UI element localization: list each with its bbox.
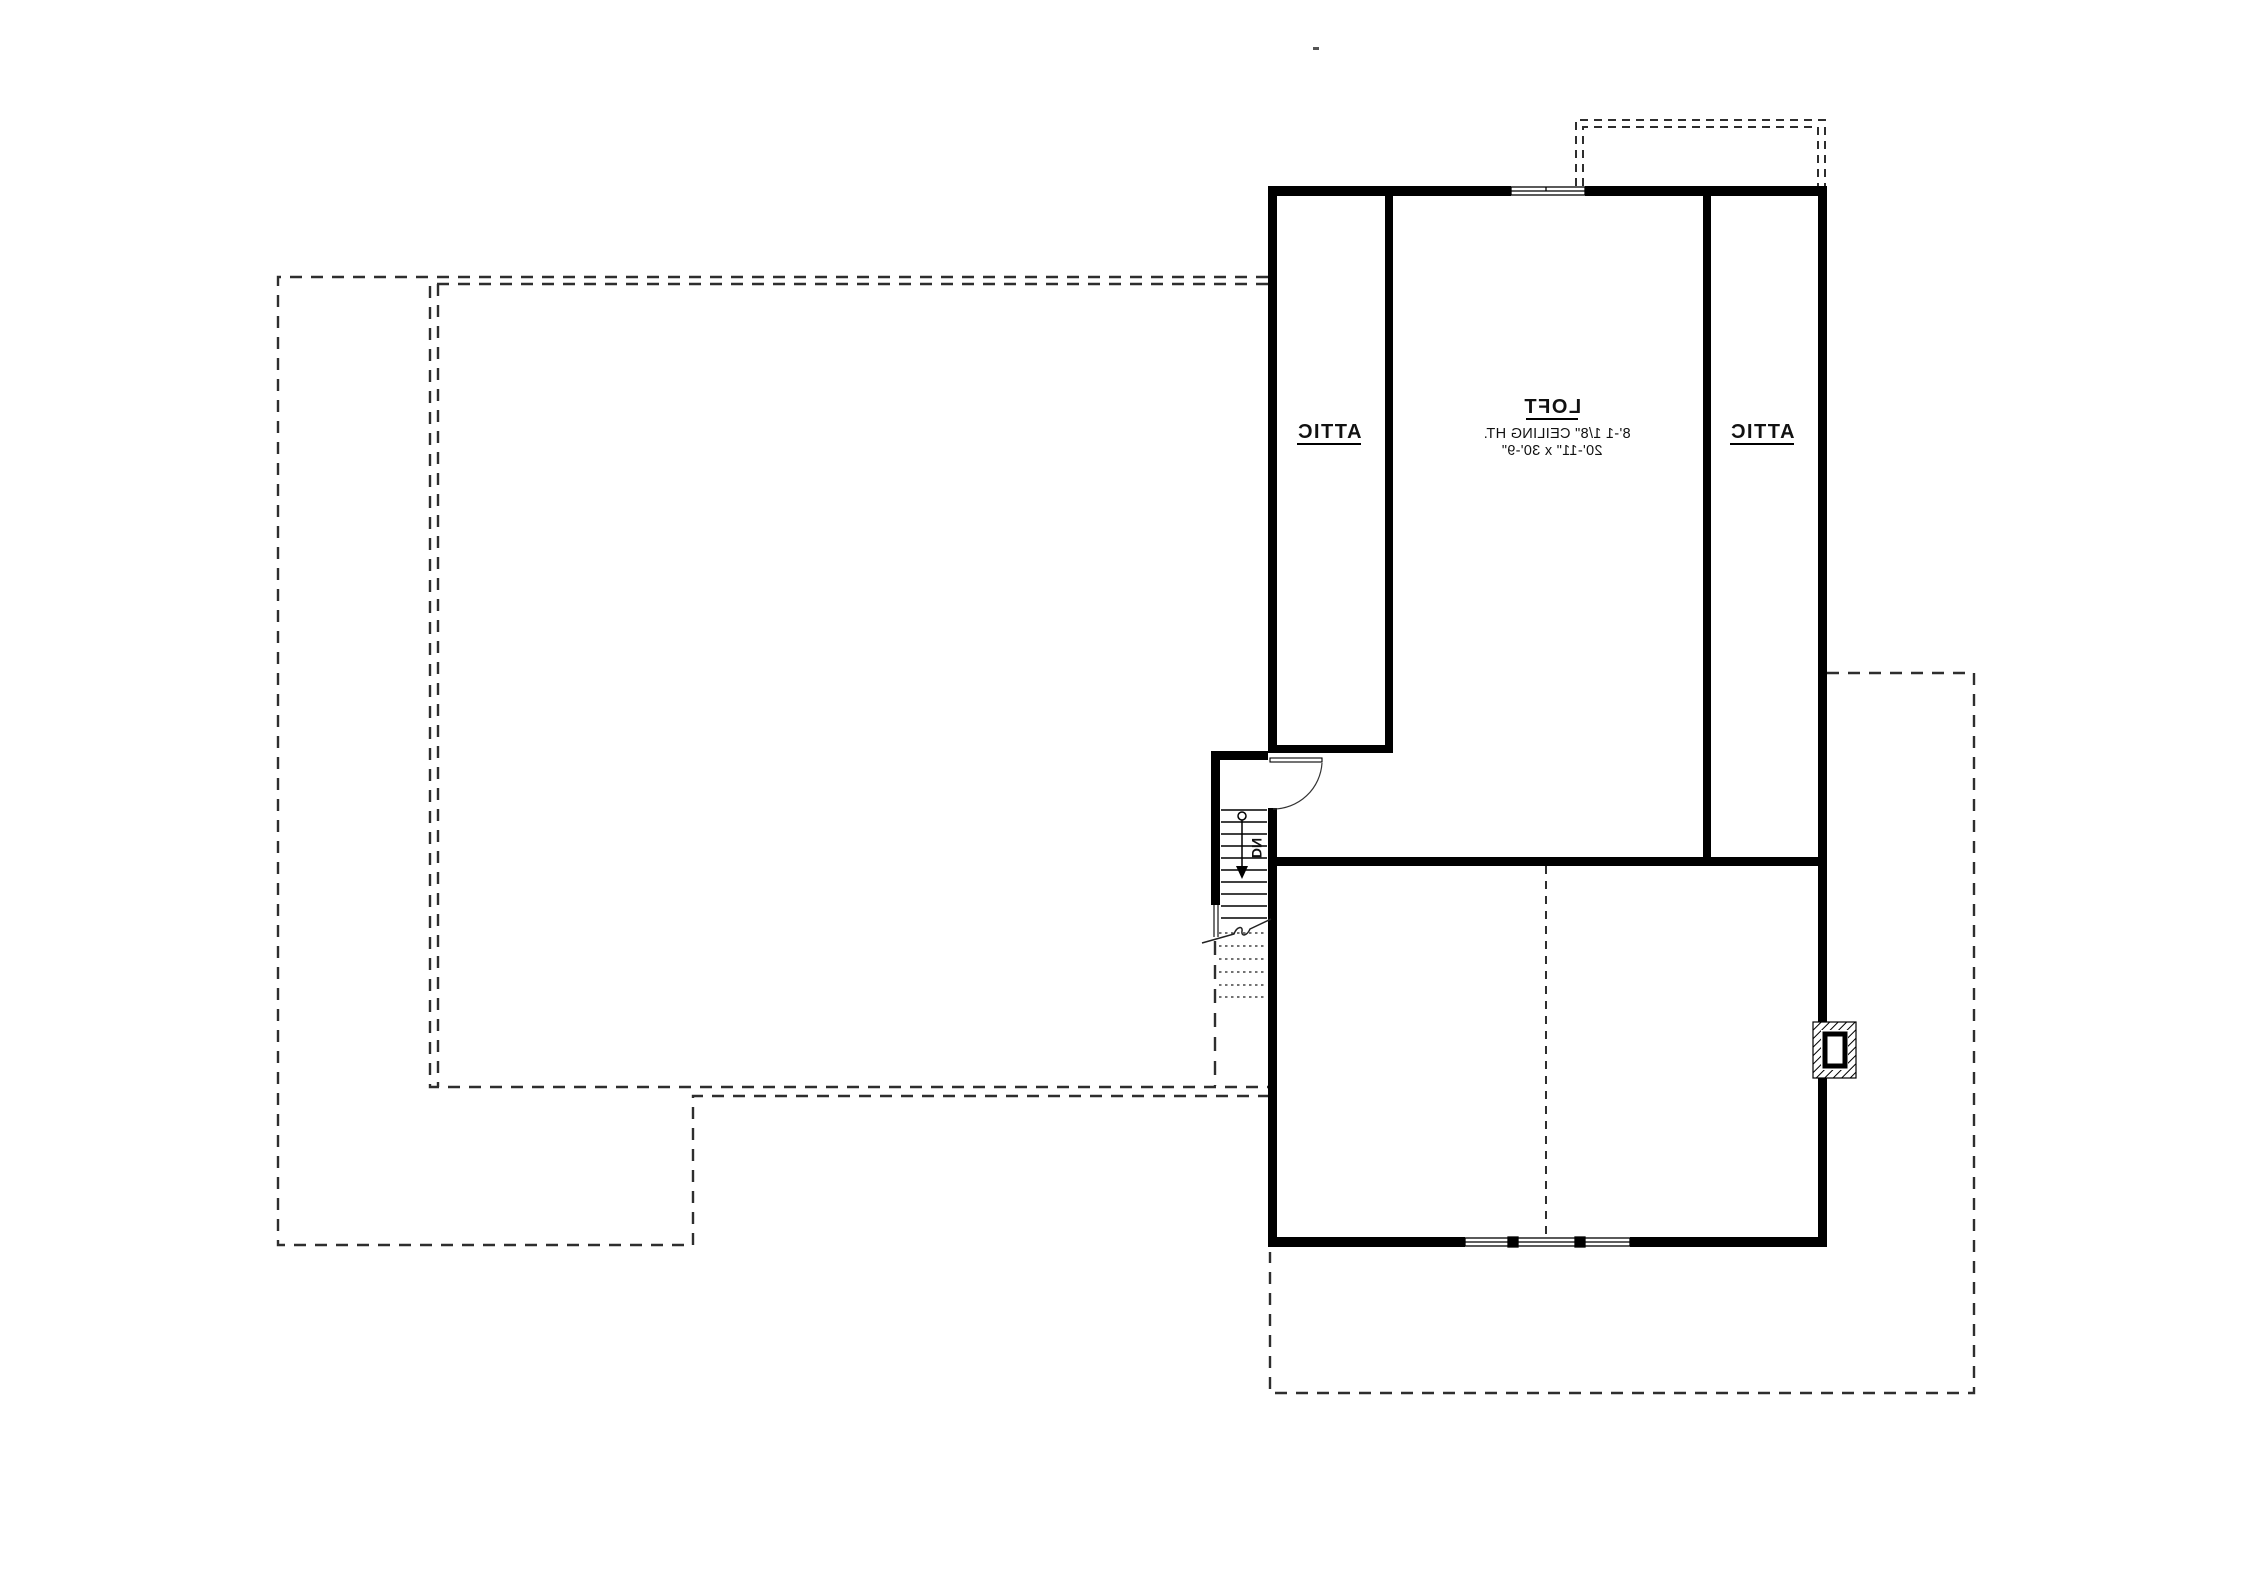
print-artifact-mark [1313, 47, 1319, 50]
labels-group: ATTIC ATTIC LOFT 8'-1 1/8" CEILING HT. 2… [1249, 396, 1794, 858]
window-bottom-group [1465, 1237, 1630, 1247]
wall-left-upper [1268, 186, 1277, 753]
dormer-outline-outer [1576, 120, 1825, 186]
window-top-group [1511, 187, 1585, 195]
stair-treads-solid [1221, 810, 1267, 918]
roof-outline-right [1270, 673, 1974, 1393]
dormer-outline-inner [1583, 127, 1818, 186]
window-bottom-mullion-2 [1575, 1237, 1585, 1247]
roof-outline-left-inner [430, 284, 1268, 1087]
wall-left-lower [1268, 808, 1277, 1247]
attic-left-label: ATTIC [1297, 421, 1362, 443]
door-group [1270, 758, 1322, 809]
chimney-flue [1825, 1034, 1845, 1066]
loft-label: LOFT [1523, 396, 1581, 418]
wall-bottom-right-segment [1630, 1237, 1827, 1247]
loft-ceiling-height: 8'-1 1/8" CEILING HT. [1483, 426, 1630, 442]
wall-stair-left [1211, 751, 1220, 905]
floor-plan-drawing: ATTIC ATTIC LOFT 8'-1 1/8" CEILING HT. 2… [0, 0, 2267, 1576]
wall-bottom-left-segment [1268, 1237, 1465, 1247]
dormer-outline-group [1576, 120, 1825, 186]
wall-attic-left [1385, 186, 1393, 753]
loft-dimensions: 20'-11" x 30'-9" [1502, 443, 1603, 459]
chimney [1813, 1022, 1856, 1078]
wall-loft-divider [1268, 857, 1827, 866]
wall-attic-right [1703, 186, 1711, 857]
walls-group [1211, 186, 1827, 1247]
door-leaf [1270, 758, 1322, 762]
roof-outline-left-outer [278, 277, 1268, 1245]
stair-railing [1214, 905, 1218, 937]
wall-attic-left-bottom [1277, 745, 1393, 753]
door-swing-arc [1273, 763, 1322, 809]
floor-plan-page: ATTIC ATTIC LOFT 8'-1 1/8" CEILING HT. 2… [0, 0, 2267, 1576]
attic-right-label: ATTIC [1730, 421, 1795, 443]
roof-outline-group [278, 277, 1974, 1393]
window-bottom-mullion-1 [1508, 1237, 1518, 1247]
stair-treads-hidden [1219, 933, 1266, 997]
wall-right [1818, 186, 1827, 1247]
stair-break-line [1202, 919, 1271, 943]
stairs-dn-label: DN [1249, 838, 1265, 858]
